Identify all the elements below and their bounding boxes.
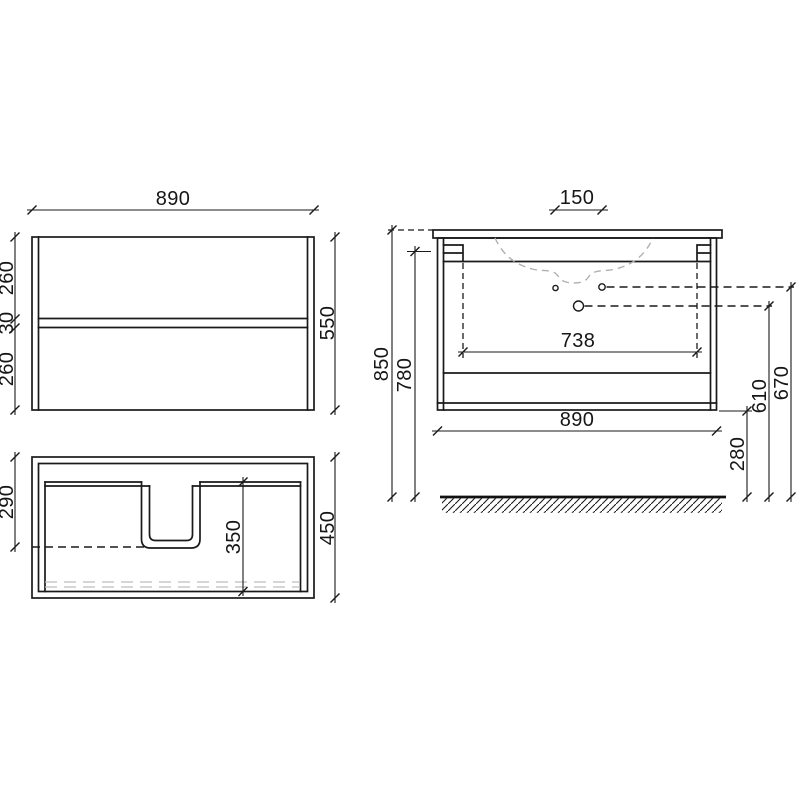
sink-basin-outline (495, 238, 653, 283)
dim-floor-clearance: 280 (727, 406, 752, 502)
dim-front-height: 550 (317, 232, 340, 415)
dim-label-overall-depth: 450 (317, 511, 339, 546)
dim-plan-cutout-depth: 290 (0, 452, 20, 552)
dim-drain-height: 610 (749, 301, 774, 502)
drain-hole (574, 301, 584, 311)
dim-overall-height: 850 (371, 225, 397, 502)
dim-faucet-height: 670 (771, 282, 796, 502)
faucet-hole-left (553, 285, 558, 290)
floor-hatching (442, 498, 722, 513)
dim-label-hanger-height: 780 (394, 358, 416, 393)
dim-label-upper-drawer: 260 (0, 261, 18, 296)
dim-hanger-height: 780 (394, 246, 420, 502)
siphon-cutout-inner (150, 486, 193, 541)
dim-label-floor-clearance: 280 (727, 437, 749, 472)
dim-label-front-width: 890 (156, 188, 191, 210)
dim-plan-depth: 450 (317, 452, 340, 603)
dim-faucet-spacing: 150 (549, 187, 608, 215)
wall-bracket-right (697, 245, 711, 262)
dim-label-drain-height: 610 (749, 379, 771, 414)
dim-front-width: 890 (27, 188, 319, 215)
dim-label-lower-drawer: 260 (0, 352, 18, 387)
plan-view: 290 350 450 (0, 452, 340, 603)
faucet-hole-right (599, 284, 605, 290)
dim-label-overall-height: 850 (371, 347, 393, 382)
cabinet-plan-outline (32, 457, 314, 598)
dim-label-hanger-spacing: 738 (561, 330, 596, 352)
wall-bracket-left (444, 245, 464, 262)
dim-hanger-spacing: 738 (458, 330, 702, 357)
dim-plan-inner-depth: 350 (223, 477, 248, 596)
dim-label-drawer-gap: 30 (0, 311, 18, 334)
cabinet-body-outline (438, 238, 717, 410)
dim-label-cutout-depth: 290 (0, 485, 18, 520)
dim-label-side-width: 890 (560, 409, 595, 431)
elevation-view: 150 738 890 850 780 (371, 187, 796, 513)
dim-label-inner-depth: 350 (223, 520, 245, 555)
dim-label-front-height: 550 (317, 306, 339, 341)
dim-side-width: 890 (432, 409, 722, 436)
dim-front-segments: 260 30 260 (0, 232, 20, 415)
dim-label-faucet-spacing: 150 (560, 187, 595, 209)
countertop (433, 230, 722, 238)
vanity-technical-drawing: 890 260 30 260 550 (0, 0, 800, 800)
drawing-canvas: 890 260 30 260 550 (0, 0, 800, 800)
dim-label-faucet-height: 670 (771, 366, 793, 401)
front-view: 890 260 30 260 550 (0, 188, 340, 415)
cabinet-front-outline (32, 237, 314, 410)
